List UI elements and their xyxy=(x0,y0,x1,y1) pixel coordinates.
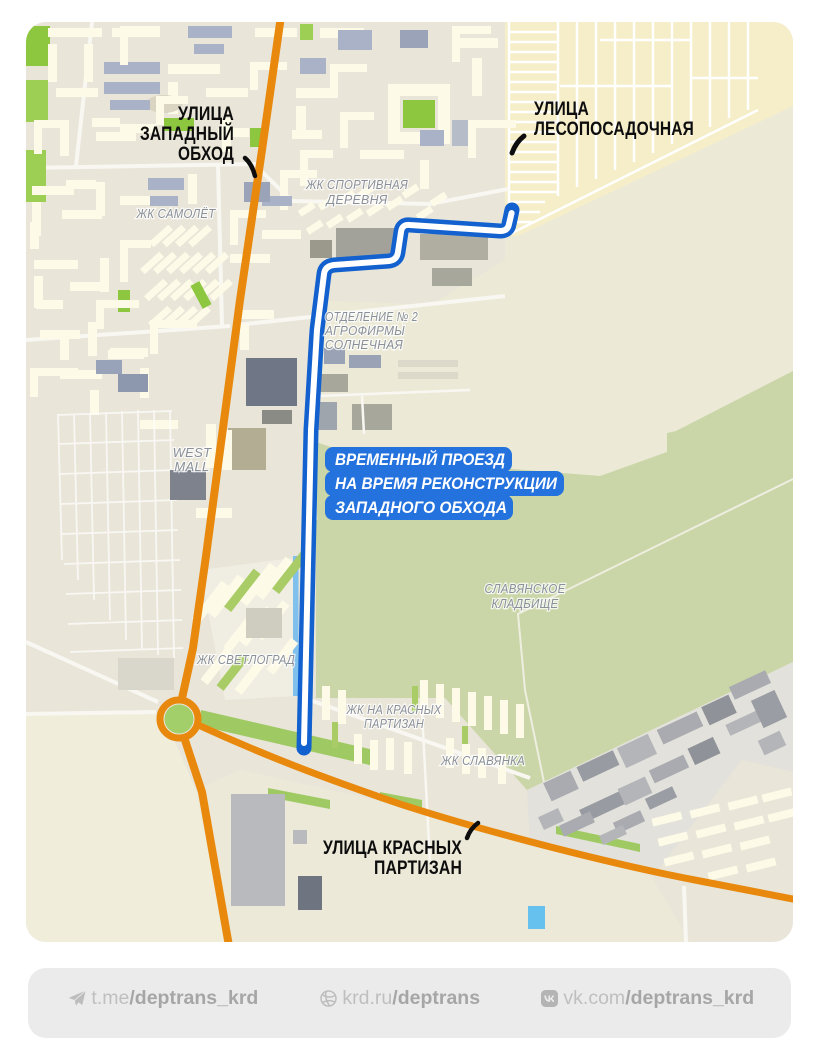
svg-text:СОЛНЕЧНАЯ: СОЛНЕЧНАЯ xyxy=(325,337,403,352)
svg-text:ЖК СВЕТЛОГРАД: ЖК СВЕТЛОГРАД xyxy=(196,652,295,667)
svg-text:ЛЕСОПОСАДОЧНАЯ: ЛЕСОПОСАДОЧНАЯ xyxy=(534,119,694,140)
svg-text:ЗАПАДНОГО ОБХОДА: ЗАПАДНОГО ОБХОДА xyxy=(335,499,507,517)
svg-text:ЖК САМОЛЁТ: ЖК САМОЛЁТ xyxy=(136,206,217,221)
svg-text:СЛАВЯНСКОЕ: СЛАВЯНСКОЕ xyxy=(485,581,566,596)
svg-text:MALL: MALL xyxy=(174,459,209,474)
svg-text:ДЕРЕВНЯ: ДЕРЕВНЯ xyxy=(325,192,388,207)
svg-text:ПАРТИЗАН: ПАРТИЗАН xyxy=(374,858,462,879)
svg-text:WEST: WEST xyxy=(173,445,213,460)
svg-text:УЛИЦА: УЛИЦА xyxy=(534,99,589,120)
svg-text:УЛИЦА: УЛИЦА xyxy=(178,104,234,125)
svg-text:ЗАПАДНЫЙ: ЗАПАДНЫЙ xyxy=(140,123,234,145)
svg-text:ЖК НА КРАСНЫХ: ЖК НА КРАСНЫХ xyxy=(346,702,443,717)
svg-text:ОТДЕЛЕНИЕ № 2: ОТДЕЛЕНИЕ № 2 xyxy=(325,309,418,324)
svg-text:УЛИЦА КРАСНЫХ: УЛИЦА КРАСНЫХ xyxy=(323,838,462,859)
svg-text:ЖК СПОРТИВНАЯ: ЖК СПОРТИВНАЯ xyxy=(305,177,408,192)
svg-text:НА ВРЕМЯ РЕКОНСТРУКЦИИ: НА ВРЕМЯ РЕКОНСТРУКЦИИ xyxy=(335,475,558,493)
svg-text:ПАРТИЗАН: ПАРТИЗАН xyxy=(364,716,424,731)
svg-text:ОБХОД: ОБХОД xyxy=(178,144,234,165)
svg-text:КЛАДБИЩЕ: КЛАДБИЩЕ xyxy=(492,596,559,611)
svg-text:АГРОФИРМЫ: АГРОФИРМЫ xyxy=(324,323,405,338)
svg-text:ЖК СЛАВЯНКА: ЖК СЛАВЯНКА xyxy=(440,753,525,768)
svg-text:ВРЕМЕННЫЙ ПРОЕЗД: ВРЕМЕННЫЙ ПРОЕЗД xyxy=(335,449,505,469)
